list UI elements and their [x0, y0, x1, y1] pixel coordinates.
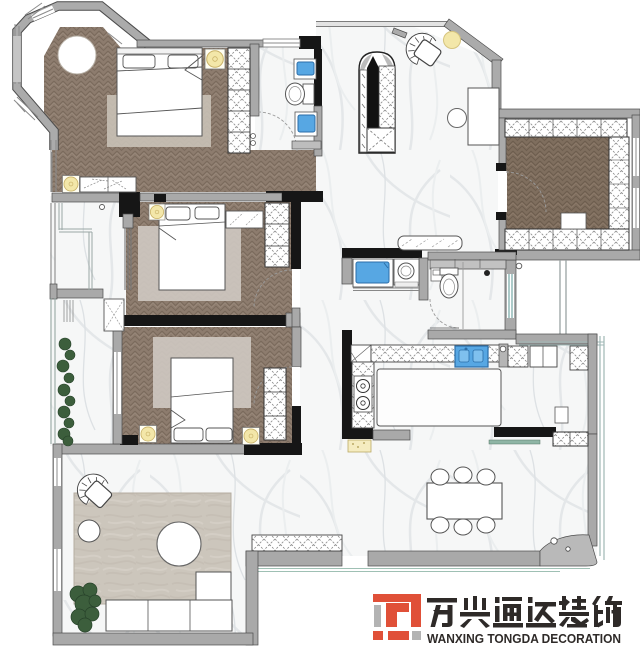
svg-text:WANXING TONGDA DECORATION: WANXING TONGDA DECORATION — [427, 631, 621, 646]
